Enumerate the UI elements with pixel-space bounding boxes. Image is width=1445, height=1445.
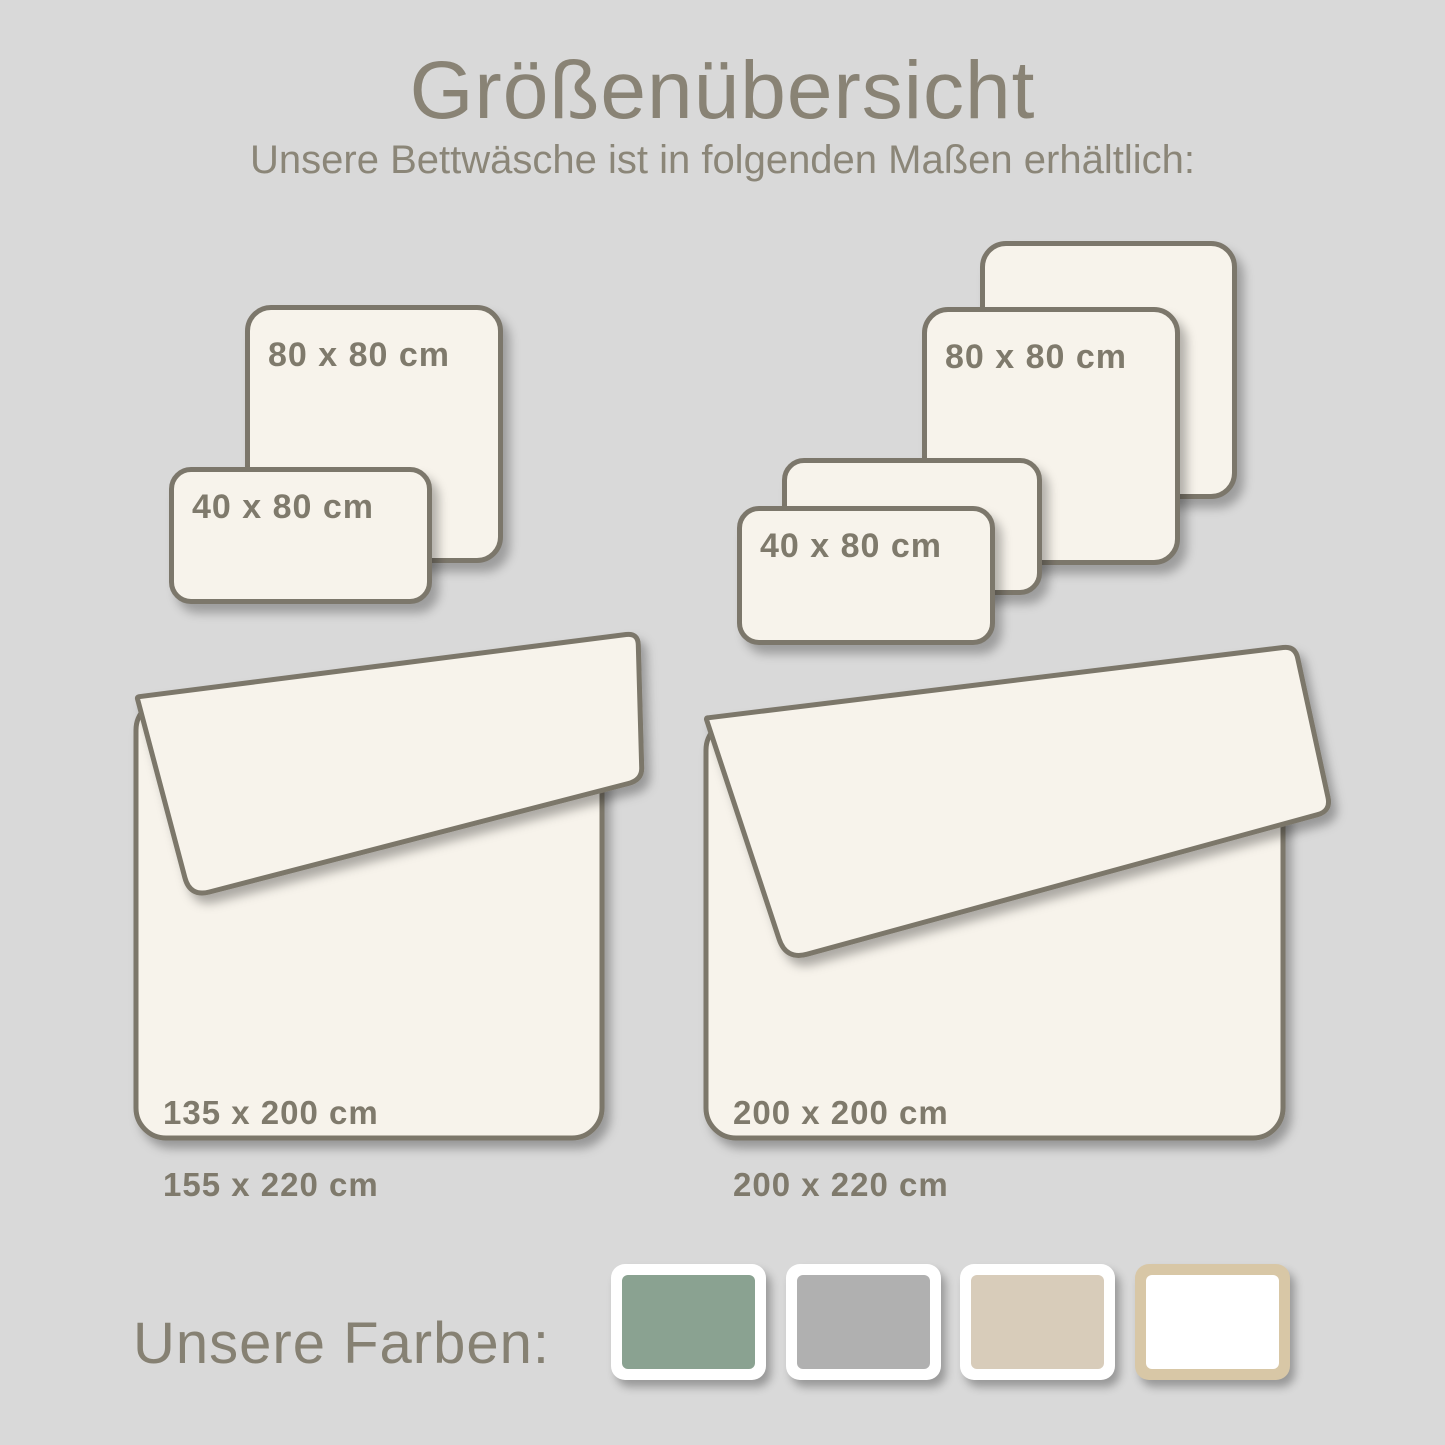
color-swatch-beige-fill — [971, 1275, 1104, 1369]
color-swatch-beige — [960, 1264, 1115, 1380]
color-swatch-white — [1135, 1264, 1290, 1380]
duvet-size-label-left: 135 x 200 cm 155 x 220 cm — [163, 1059, 379, 1239]
color-swatch-green — [611, 1264, 766, 1380]
pillow-size-label: 40 x 80 cm — [760, 527, 942, 566]
pillow-size-label: 80 x 80 cm — [945, 338, 1127, 377]
color-swatch-green-fill — [622, 1275, 755, 1369]
size-chart-infographic: Größenübersicht Unsere Bettwäsche ist in… — [0, 0, 1445, 1445]
colors-section-label: Unsere Farben: — [133, 1310, 550, 1377]
page-subtitle: Unsere Bettwäsche ist in folgenden Maßen… — [0, 138, 1445, 183]
duvet-size-line: 200 x 220 cm — [733, 1167, 949, 1203]
pillow-size-label: 80 x 80 cm — [268, 336, 450, 375]
pillow-size-label: 40 x 80 cm — [192, 488, 374, 527]
duvet-size-line: 135 x 200 cm — [163, 1095, 379, 1131]
color-swatch-white-fill — [1146, 1275, 1279, 1369]
duvet-size-line: 155 x 220 cm — [163, 1167, 379, 1203]
color-swatch-grey — [786, 1264, 941, 1380]
color-swatch-grey-fill — [797, 1275, 930, 1369]
pillow-rect-40x80-left: 40 x 80 cm — [169, 467, 432, 604]
duvet-size-line: 200 x 200 cm — [733, 1095, 949, 1131]
duvet-size-label-right: 200 x 200 cm 200 x 220 cm — [733, 1059, 949, 1239]
page-title: Größenübersicht — [0, 44, 1445, 138]
